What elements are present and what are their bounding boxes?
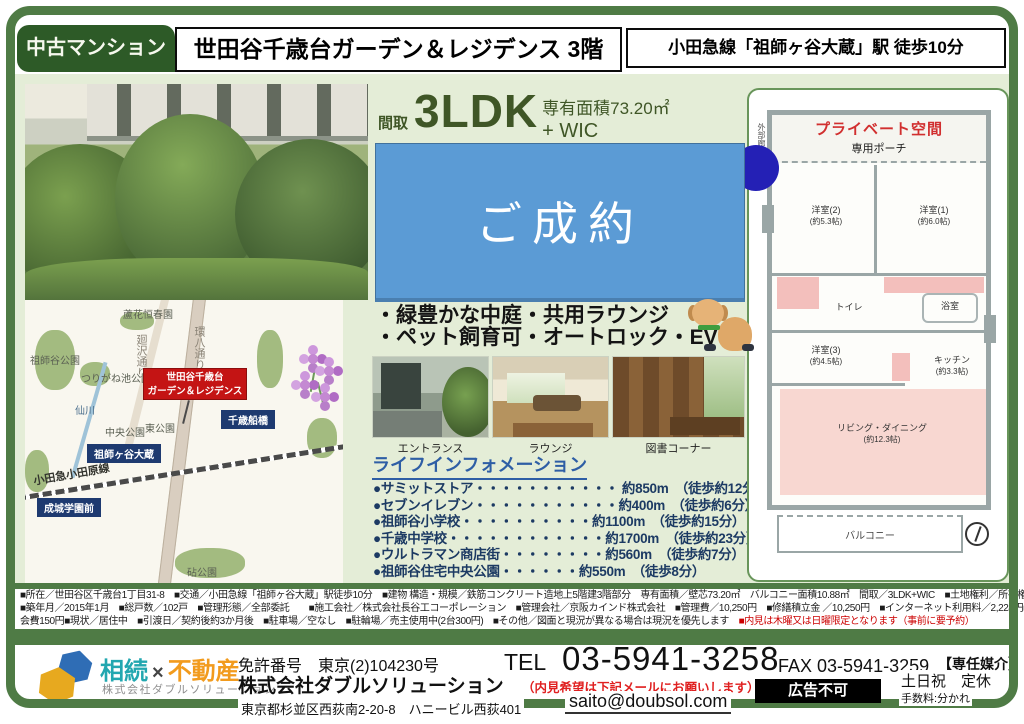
- page-title: 世田谷千歳台ガーデン＆レジデンス 3階: [175, 27, 622, 72]
- balcony-label: バルコニー: [779, 527, 961, 542]
- property-marker-line1: 世田谷千歳台: [166, 372, 223, 383]
- stone-wall: [373, 411, 442, 437]
- station-access-label: 小田急線「祖師ヶ谷大蔵」駅 徒歩10分: [626, 28, 1006, 68]
- flyer-page: 中古マンション 世田谷千歳台ガーデン＆レジデンス 3階 小田急線「祖師ヶ谷大蔵」…: [0, 0, 1024, 724]
- dog-paw: [742, 344, 754, 351]
- dog-paw: [704, 344, 716, 351]
- room-name: 洋室(1): [882, 203, 986, 216]
- feature-item: ・ペット飼育可・オートロック・EV: [375, 327, 718, 349]
- flower-illustration: [290, 348, 340, 423]
- map-park-label: 砧公園: [187, 564, 217, 579]
- no-advertising-badge: 広告不可: [755, 679, 881, 703]
- details-line: ■所在／世田谷区千歳台1丁目31-8 ■交通／小田急線「祖師ヶ谷大蔵」駅徒歩10…: [20, 589, 1006, 602]
- details-line: 会費150円■現状／居住中 ■引渡日／契約後約3か月後 ■駐車場／空なし ■駐輪…: [20, 615, 1006, 628]
- exclusive-area-label: 専有面積73.20㎡: [542, 94, 670, 119]
- property-marker-line2: ガーデン＆レジデンス: [148, 386, 243, 397]
- room-label-yoshitsu3: 洋室(3) (約4.5帖): [780, 343, 872, 367]
- area-map: 蘆花恒春園 祖師谷公園 つりがね池公園 廻沢通り 環八通り 仙川 中央公園 東公…: [25, 300, 343, 583]
- entrance-door: [381, 363, 421, 409]
- life-info-list: ●サミットストア・・・・・・・・・・・ 約850m （徒歩約12分） ●セブンイ…: [373, 481, 769, 580]
- flower-blossom: [300, 380, 310, 390]
- tel-label: TEL: [504, 649, 546, 676]
- wall-segment: [772, 383, 905, 386]
- building-exterior-photo: [25, 84, 368, 300]
- floor-plan-panel: プライベート空間 専用ポーチ 外部廊下 洋室(2) (約5.3帖) 洋室(1) …: [747, 88, 1009, 582]
- property-details-strip: ■所在／世田谷区千歳台1丁目31-8 ■交通／小田急線「祖師ヶ谷大蔵」駅徒歩10…: [20, 589, 1006, 629]
- balcony-outline: バルコニー: [777, 515, 963, 553]
- room-label-bath: 浴室: [924, 299, 976, 312]
- flower-stem: [310, 366, 316, 392]
- room-label-yoshitsu1: 洋室(1) (約6.0帖): [882, 203, 986, 227]
- entrance-photo: [372, 356, 489, 438]
- divider-bar: [13, 629, 1011, 645]
- room-name: キッチン: [912, 353, 992, 366]
- property-location-marker: 世田谷千歳台 ガーデン＆レジデンス: [143, 368, 247, 400]
- life-info-item: ●サミットストア・・・・・・・・・・・ 約850m （徒歩約12分）: [373, 481, 769, 498]
- room-label-yoshitsu2: 洋室(2) (約5.3帖): [780, 203, 872, 227]
- map-river-label: 仙川: [75, 402, 95, 417]
- room-label-toilet: トイレ: [824, 300, 874, 313]
- dog-collar: [698, 325, 720, 330]
- life-info-item: ●千歳中学校・・・・・・・・・・・・約1700m （徒歩約23分）: [373, 531, 769, 548]
- room-size: (約3.3帖): [912, 366, 992, 377]
- commission-label: 手数料:分かれ: [899, 690, 972, 706]
- compass-needle: [974, 526, 981, 542]
- room-label-living: リビング・ダイニング (約12.3帖): [792, 421, 972, 445]
- closet-highlight: [777, 277, 819, 309]
- plant-blob: [442, 367, 489, 437]
- life-info-item: ●祖師谷小学校・・・・・・・・・・約1100m （徒歩約15分）: [373, 514, 769, 531]
- sold-banner: ご成約: [375, 143, 745, 302]
- lounge-sofa: [533, 395, 581, 411]
- photo-caption: 図書コーナー: [612, 440, 745, 456]
- closed-days-label: 土日祝 定休: [899, 670, 993, 691]
- map-park-label: 中央公園: [105, 424, 145, 439]
- wall-segment: [772, 273, 986, 276]
- contact-email: saito@doubsol.com: [565, 691, 731, 714]
- details-line: ■築年月／2015年1月 ■総戸数／102戸 ■管理形態／全部委託 ■施工会社／…: [20, 602, 1006, 615]
- wall-segment: [772, 330, 986, 333]
- porch-label: 専用ポーチ: [772, 140, 986, 156]
- feature-item: ・緑豊かな中庭・共用ラウンジ: [375, 305, 718, 327]
- layout-spec-heading: 間取 3LDK 専有面積73.20㎡ + WIC: [378, 86, 670, 143]
- library-table: [670, 417, 740, 435]
- closet-highlight: [884, 277, 984, 293]
- property-type-badge: 中古マンション: [17, 25, 175, 72]
- madori-suffix: + WIC: [542, 120, 670, 143]
- wall-pillar: [984, 315, 996, 343]
- room-name: トイレ: [824, 300, 874, 313]
- map-park-label: 東公園: [145, 420, 175, 435]
- room-name: 洋室(2): [780, 203, 872, 216]
- station-chip-chitosefunabashi: 千歳船橋: [221, 410, 275, 429]
- flower-blossom: [324, 366, 334, 376]
- room-name: リビング・ダイニング: [792, 421, 972, 434]
- madori-label: 間取: [378, 112, 408, 133]
- room-name: 浴室: [924, 299, 976, 312]
- closet-highlight: [892, 353, 910, 381]
- library-window: [704, 357, 744, 417]
- map-park-label: 蘆花恒春園: [123, 306, 173, 321]
- private-space-label: プライベート空間: [772, 118, 986, 139]
- life-info-item: ●ウルトラマン商店街・・・・・・・・約560m （徒歩約7分）: [373, 547, 769, 564]
- flower-blossom: [320, 392, 330, 402]
- shrub-hedge: [25, 258, 368, 300]
- room-size: (約12.3帖): [792, 434, 972, 445]
- map-road-label: 環八通り: [191, 326, 207, 370]
- map-park-label: 祖師谷公園: [30, 352, 80, 367]
- dog-illustration: [690, 299, 756, 351]
- details-line3-black: 会費150円■現状／居住中 ■引渡日／契約後約3か月後 ■駐車場／空なし ■駐輪…: [20, 616, 739, 627]
- life-info-item: ●祖師谷住宅中央公園・・・・・・約550m （徒歩8分）: [373, 564, 769, 581]
- wall-pillar: [762, 205, 774, 233]
- madori-value: 3LDK: [414, 86, 538, 137]
- tel-number: 03-5941-3258: [562, 640, 780, 678]
- park-blob: [257, 330, 283, 388]
- life-info-title: ライフインフォメーション: [372, 451, 587, 480]
- details-line3-red-notice: ■内見は木曜又は日曜限定となります（事前に要予約）: [739, 616, 975, 627]
- lounge-table: [513, 423, 593, 437]
- room-size: (約5.3帖): [780, 216, 872, 227]
- library-photo: [612, 356, 745, 438]
- dog-head: [692, 299, 724, 327]
- floor-plan-outline: プライベート空間 専用ポーチ 外部廊下 洋室(2) (約5.3帖) 洋室(1) …: [767, 110, 991, 510]
- life-info-item: ●セブンイレブン・・・・・・・・・・・約400m （徒歩約6分）: [373, 498, 769, 515]
- feature-list: ・緑豊かな中庭・共用ラウンジ ・ペット飼育可・オートロック・EV: [375, 305, 718, 349]
- compass-icon: [965, 522, 989, 546]
- lounge-photo: [492, 356, 609, 438]
- flower-blossom: [308, 354, 318, 364]
- room-label-kitchen: キッチン (約3.3帖): [912, 353, 992, 377]
- spec-right-column: 専有面積73.20㎡ + WIC: [542, 94, 670, 143]
- station-chip-seijogakuenmae: 成城学園前: [37, 498, 101, 517]
- company-address: 東京都杉並区西荻南2-20-8 ハニービル西荻401: [238, 699, 524, 718]
- wall-segment: [874, 165, 877, 273]
- room-name: 洋室(3): [780, 343, 872, 356]
- room-size: (約4.5帖): [780, 356, 872, 367]
- station-chip-soshigayaokura: 祖師ヶ谷大蔵: [87, 444, 161, 463]
- company-name: 株式会社ダブルソリューション: [238, 671, 504, 698]
- room-size: (約6.0帖): [882, 216, 986, 227]
- sold-banner-text: ご成約: [476, 188, 644, 254]
